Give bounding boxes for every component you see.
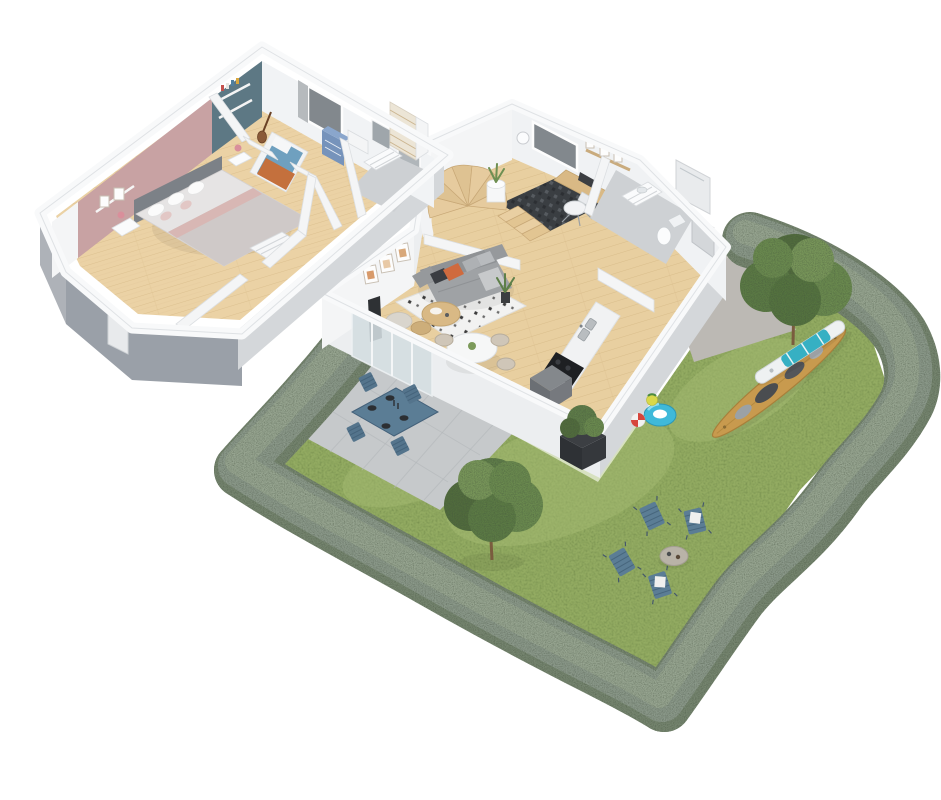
beach-ball-yellow [647, 394, 658, 405]
flower-vase-pink-2 [235, 145, 242, 152]
stone-fire-table [658, 547, 690, 569]
flower-vase-pink [118, 212, 125, 219]
swim-ring [644, 404, 676, 426]
side-table [411, 322, 431, 335]
table-centerpiece [468, 342, 476, 350]
floor-plan-render [0, 0, 941, 800]
kids-curtain [298, 80, 308, 123]
pink-wall-frame-2 [114, 188, 124, 200]
pink-wall-frame-1 [100, 196, 109, 207]
beach-ball-red [631, 413, 645, 427]
coffee-table [422, 302, 460, 326]
floor-plan-svg [0, 0, 941, 800]
pendant-lamp [517, 132, 529, 144]
